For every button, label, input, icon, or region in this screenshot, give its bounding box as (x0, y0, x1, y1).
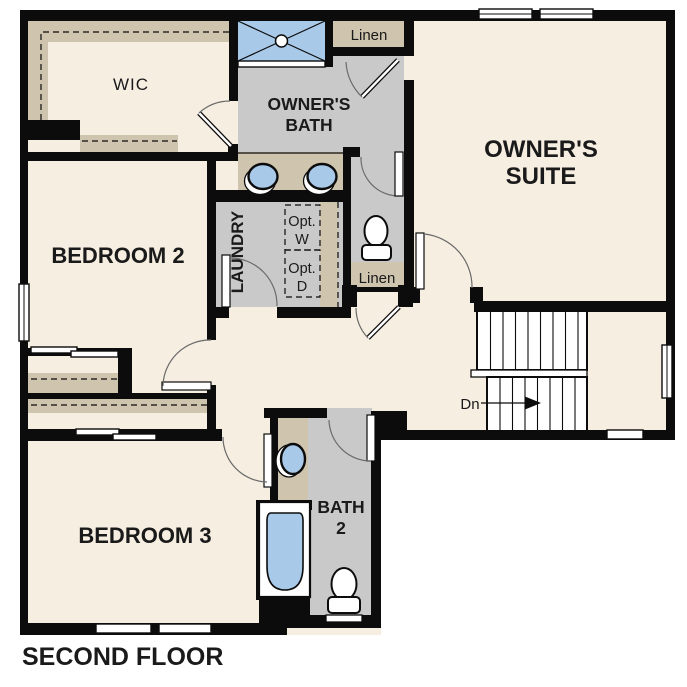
label-bedroom3: BEDROOM 3 (78, 523, 211, 548)
shower-fixture (238, 21, 325, 67)
label-bath2-1: BATH (317, 497, 364, 517)
label-owners-suite-2: SUITE (506, 163, 577, 190)
window-hall-south (607, 430, 643, 439)
floor-plan-page: WIC OWNER'S BATH Linen OWNER'S SUITE BED… (0, 0, 687, 687)
wic-shelf-left (28, 21, 48, 122)
label-opt-dryer-1: Opt. (288, 261, 315, 277)
bedroom3-closet-slider-2 (113, 434, 156, 440)
page-title: SECOND FLOOR (22, 643, 223, 671)
label-laundry: LAUNDRY (228, 210, 247, 293)
label-bath2-2: 2 (336, 518, 346, 538)
bath2-sink (276, 444, 305, 477)
staircase-down (471, 308, 587, 431)
bedroom2-closet-slider-2 (71, 351, 118, 357)
bedroom2-closet-shelf (28, 373, 125, 393)
label-owners-bath-2: BATH (285, 115, 332, 135)
label-owners-bath-1: OWNER'S (268, 94, 351, 114)
label-opt-dryer-2: D (297, 279, 307, 295)
label-owners-suite-1: OWNER'S (484, 136, 598, 163)
label-linen-top: Linen (351, 27, 388, 44)
shower-glass-door (238, 61, 325, 67)
bedroom2-closet-slider-1 (31, 347, 77, 353)
window-bedroom3-2 (159, 624, 211, 633)
floor-plan-drawing: WIC OWNER'S BATH Linen OWNER'S SUITE BED… (0, 0, 687, 687)
label-linen-hall: Linen (359, 270, 396, 287)
bath2-door-floor (327, 408, 368, 418)
bath2-tub (259, 502, 310, 597)
label-bedroom2: BEDROOM 2 (51, 243, 184, 268)
label-opt-washer-2: W (295, 232, 309, 248)
label-stairs-dn: Dn (460, 396, 479, 413)
window-bedroom3-1 (96, 624, 151, 633)
laundry-counter-strip (320, 200, 338, 307)
label-opt-washer-1: Opt. (288, 214, 315, 230)
wic-shelf-bottom (80, 135, 178, 153)
label-wic: WIC (113, 75, 149, 94)
owners-toilet (362, 216, 391, 260)
